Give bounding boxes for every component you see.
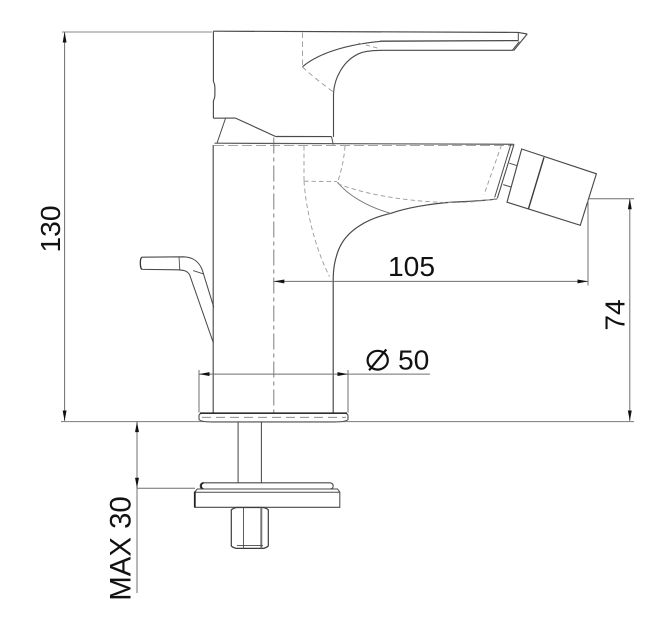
svg-text:105: 105 [388,250,435,282]
svg-text:74: 74 [599,299,631,330]
svg-text:130: 130 [34,205,66,252]
svg-text:50: 50 [398,344,429,376]
svg-text:MAX 30: MAX 30 [105,496,138,601]
